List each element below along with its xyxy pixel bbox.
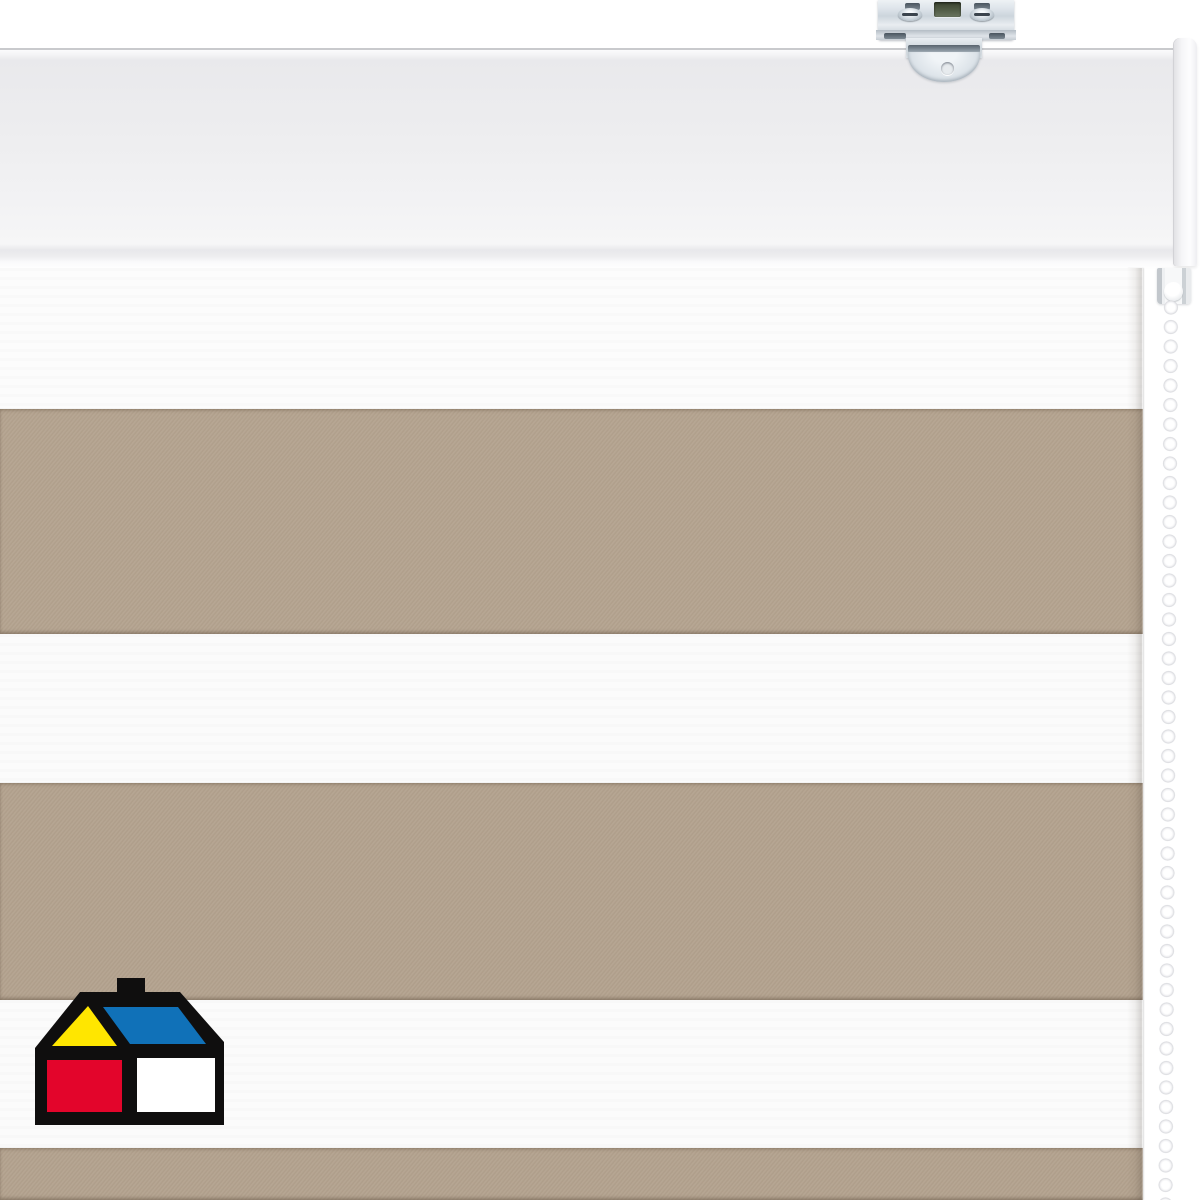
homecenter-logo xyxy=(28,970,228,1130)
mounting-bracket xyxy=(872,0,1022,86)
screw-icon xyxy=(898,8,922,21)
fabric-band-solid xyxy=(0,409,1143,634)
bracket-tab-hole xyxy=(941,62,954,75)
fabric-band-sheer xyxy=(0,634,1143,783)
logo-wall-red xyxy=(47,1060,122,1112)
bracket-slot-icon xyxy=(989,33,1005,39)
fabric-band-solid xyxy=(0,1148,1143,1200)
bracket-center-hole xyxy=(934,2,961,17)
bead-chain xyxy=(1156,298,1180,1200)
headrail-endcap xyxy=(1174,38,1197,266)
bracket-round-tab xyxy=(908,52,980,82)
product-photo xyxy=(0,0,1200,1200)
logo-wall-white xyxy=(137,1058,215,1112)
fabric-band-solid xyxy=(0,783,1143,1000)
fabric-band-sheer xyxy=(0,268,1143,409)
fabric-edge-fold xyxy=(1127,268,1143,1200)
bracket-slot-icon xyxy=(884,33,906,39)
screw-icon xyxy=(970,8,994,21)
